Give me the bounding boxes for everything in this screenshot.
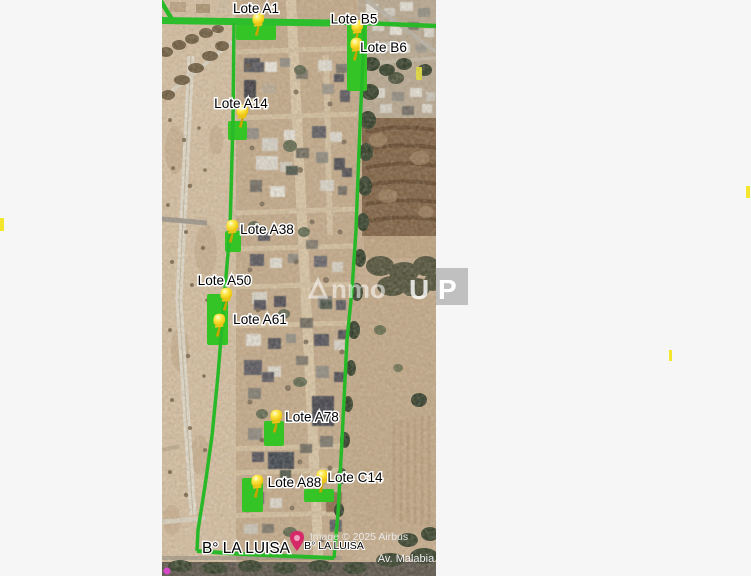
svg-text:Lote A38: Lote A38 bbox=[240, 222, 294, 237]
svg-text:Av. Malabia: Av. Malabia bbox=[378, 553, 435, 565]
svg-text:P: P bbox=[438, 274, 457, 305]
svg-text:Lote A78: Lote A78 bbox=[285, 410, 339, 425]
svg-text:U: U bbox=[409, 274, 429, 305]
svg-text:nmo: nmo bbox=[331, 274, 386, 304]
svg-text:Lote A50: Lote A50 bbox=[198, 273, 252, 288]
svg-text:Image © 2025 Airbus: Image © 2025 Airbus bbox=[310, 531, 408, 543]
svg-text:Lote A1: Lote A1 bbox=[233, 1, 279, 16]
svg-text:Lote A14: Lote A14 bbox=[214, 96, 268, 111]
svg-text:Lote B6: Lote B6 bbox=[360, 40, 407, 55]
svg-text:Lote A61: Lote A61 bbox=[233, 312, 287, 327]
svg-text:Lote B5: Lote B5 bbox=[331, 12, 378, 27]
svg-text:B° LA LUISA: B° LA LUISA bbox=[202, 540, 291, 557]
svg-text:Lote C14: Lote C14 bbox=[327, 470, 383, 485]
svg-text:Lote A88: Lote A88 bbox=[268, 475, 322, 490]
